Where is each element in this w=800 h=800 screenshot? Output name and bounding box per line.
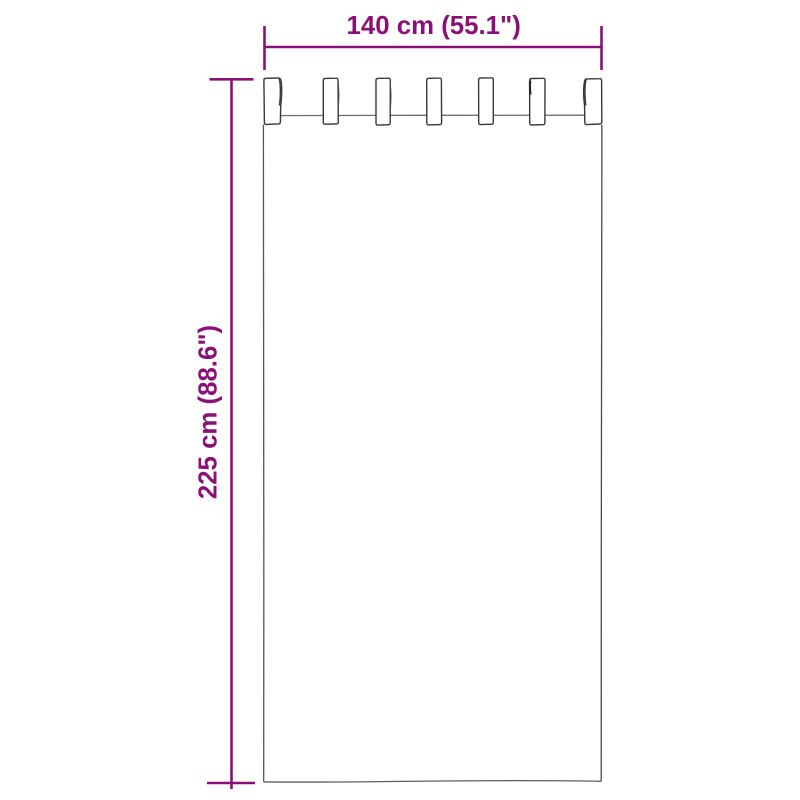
svg-text:225 cm (88.6"): 225 cm (88.6") [195,325,223,499]
svg-text:140 cm (55.1"): 140 cm (55.1") [347,12,521,40]
